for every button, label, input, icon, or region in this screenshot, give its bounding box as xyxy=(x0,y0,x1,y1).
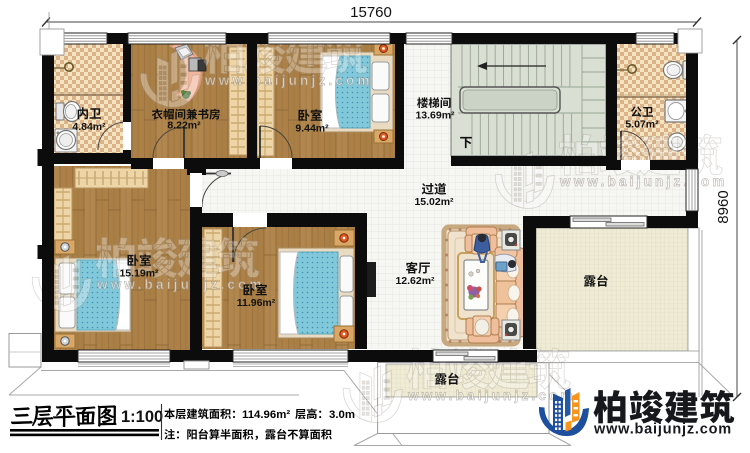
svg-text:www.baijunjz.com: www.baijunjz.com xyxy=(204,73,373,88)
svg-text:3.0m: 3.0m xyxy=(329,409,355,421)
svg-text:11.96m²: 11.96m² xyxy=(237,297,276,309)
svg-text:5.07m²: 5.07m² xyxy=(625,119,659,131)
svg-text:15760: 15760 xyxy=(350,4,392,21)
svg-text:www.baijunjz.com: www.baijunjz.com xyxy=(593,422,732,438)
svg-text:www.baijunjz.com: www.baijunjz.com xyxy=(559,174,728,189)
svg-text:1:100: 1:100 xyxy=(121,408,163,426)
svg-text:4.84m²: 4.84m² xyxy=(72,121,106,133)
svg-text:9.44m²: 9.44m² xyxy=(295,123,329,135)
svg-text:12.62m²: 12.62m² xyxy=(395,275,435,287)
svg-text:13.69m²: 13.69m² xyxy=(415,110,455,122)
svg-text:8960: 8960 xyxy=(715,190,732,223)
svg-text:15.02m²: 15.02m² xyxy=(414,196,454,208)
svg-text:15.19m²: 15.19m² xyxy=(119,268,159,280)
svg-text:8.22m²: 8.22m² xyxy=(167,120,201,132)
svg-text:www.baijunjz.com: www.baijunjz.com xyxy=(407,388,576,403)
svg-text:114.96m²: 114.96m² xyxy=(242,409,290,421)
